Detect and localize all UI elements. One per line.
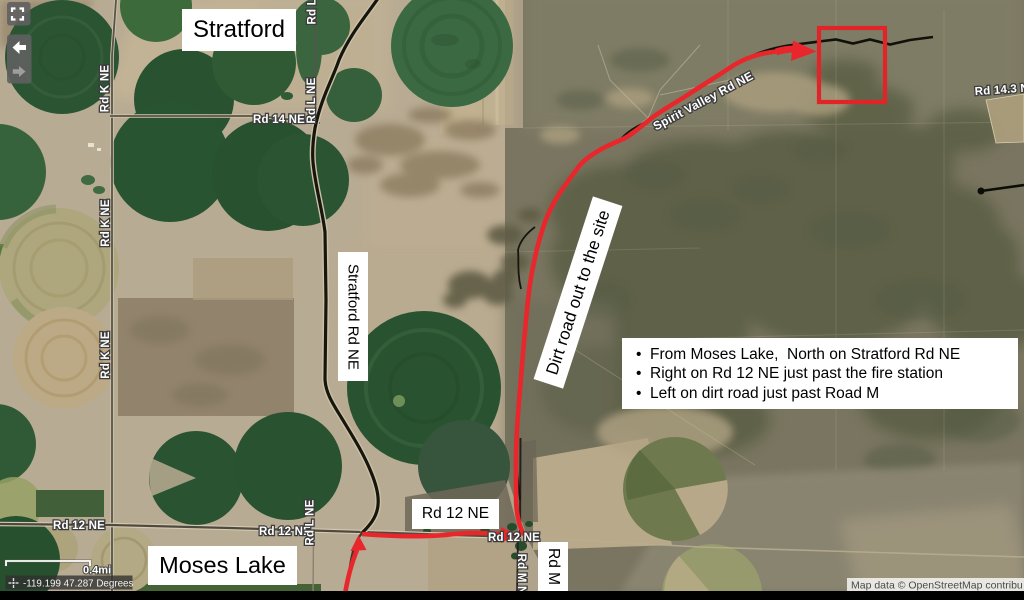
- svg-text:Rd L NE: Rd L NE: [307, 0, 319, 24]
- svg-text:Rd 12 NE: Rd 12 NE: [53, 520, 105, 532]
- svg-text:Rd K NE: Rd K NE: [100, 65, 112, 113]
- svg-text:Rd 12 NE: Rd 12 NE: [259, 526, 311, 538]
- svg-text:Rd K NE: Rd K NE: [100, 331, 112, 379]
- svg-text:Rd K NE: Rd K NE: [100, 199, 112, 247]
- svg-text:Rd M NE: Rd M NE: [515, 554, 527, 600]
- svg-text:Rd 12 NE: Rd 12 NE: [488, 532, 540, 544]
- svg-text:Rd L NE: Rd L NE: [306, 77, 318, 123]
- svg-text:Rd L NE: Rd L NE: [305, 499, 317, 545]
- svg-text:Rd 14 NE: Rd 14 NE: [253, 114, 305, 126]
